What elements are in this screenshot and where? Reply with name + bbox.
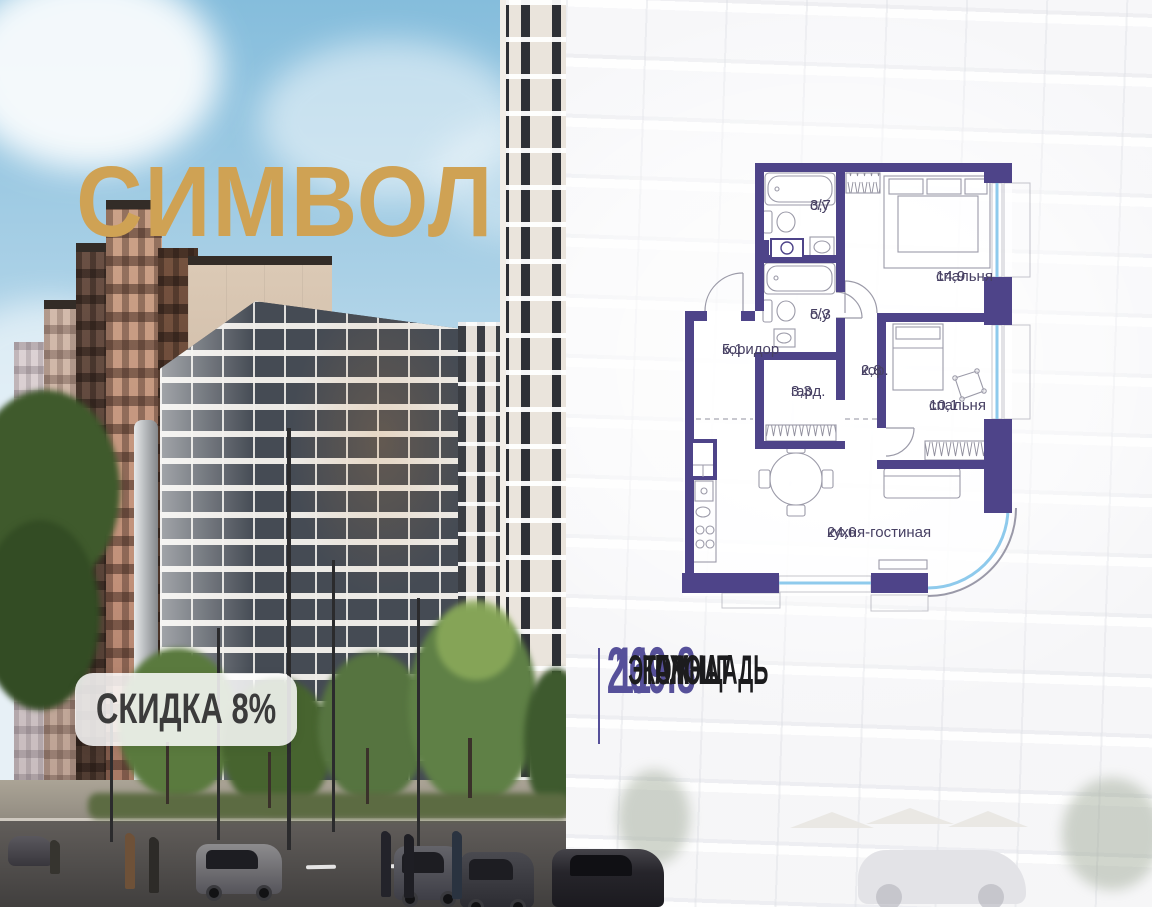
grass-strip bbox=[88, 793, 566, 819]
car bbox=[460, 852, 534, 907]
street-lamp bbox=[332, 560, 335, 832]
car-sedan bbox=[196, 844, 282, 894]
discount-label: СКИДКА 8% bbox=[96, 685, 276, 734]
pedestrian bbox=[125, 833, 139, 897]
tree-trunk bbox=[366, 748, 369, 804]
street-lamp bbox=[417, 598, 420, 848]
tree-highlight bbox=[436, 600, 516, 680]
pedestrian bbox=[452, 831, 466, 907]
stat-rooms-value: 2 bbox=[607, 640, 626, 701]
stats-divider bbox=[598, 648, 600, 744]
pedestrian bbox=[381, 831, 395, 905]
listing-card: СИМВОЛ СКИДКА 8% bbox=[0, 0, 1152, 907]
faint-car bbox=[858, 850, 1026, 904]
car-dark-foreground bbox=[552, 849, 664, 907]
tree-trunk bbox=[468, 738, 472, 798]
listing-stats: 69.8 ПЛОЩАДЬ 11 ЭТАЖ 2 КОМНАТ bbox=[598, 640, 1110, 752]
pedestrian bbox=[149, 837, 163, 901]
pedestrian bbox=[50, 840, 64, 882]
parked-van bbox=[8, 836, 54, 866]
tree-trunk bbox=[268, 752, 271, 808]
lane-marking bbox=[306, 865, 336, 870]
street-lamp bbox=[287, 428, 291, 850]
building-photo: СИМВОЛ СКИДКА 8% bbox=[0, 0, 566, 907]
tree-trunk bbox=[166, 742, 169, 804]
brand-logo: СИМВОЛ bbox=[76, 152, 492, 252]
pedestrian bbox=[404, 834, 418, 906]
stat-rooms-label: КОМНАТ bbox=[642, 649, 731, 691]
faint-tree bbox=[1062, 778, 1152, 890]
discount-badge: СКИДКА 8% bbox=[75, 673, 297, 746]
